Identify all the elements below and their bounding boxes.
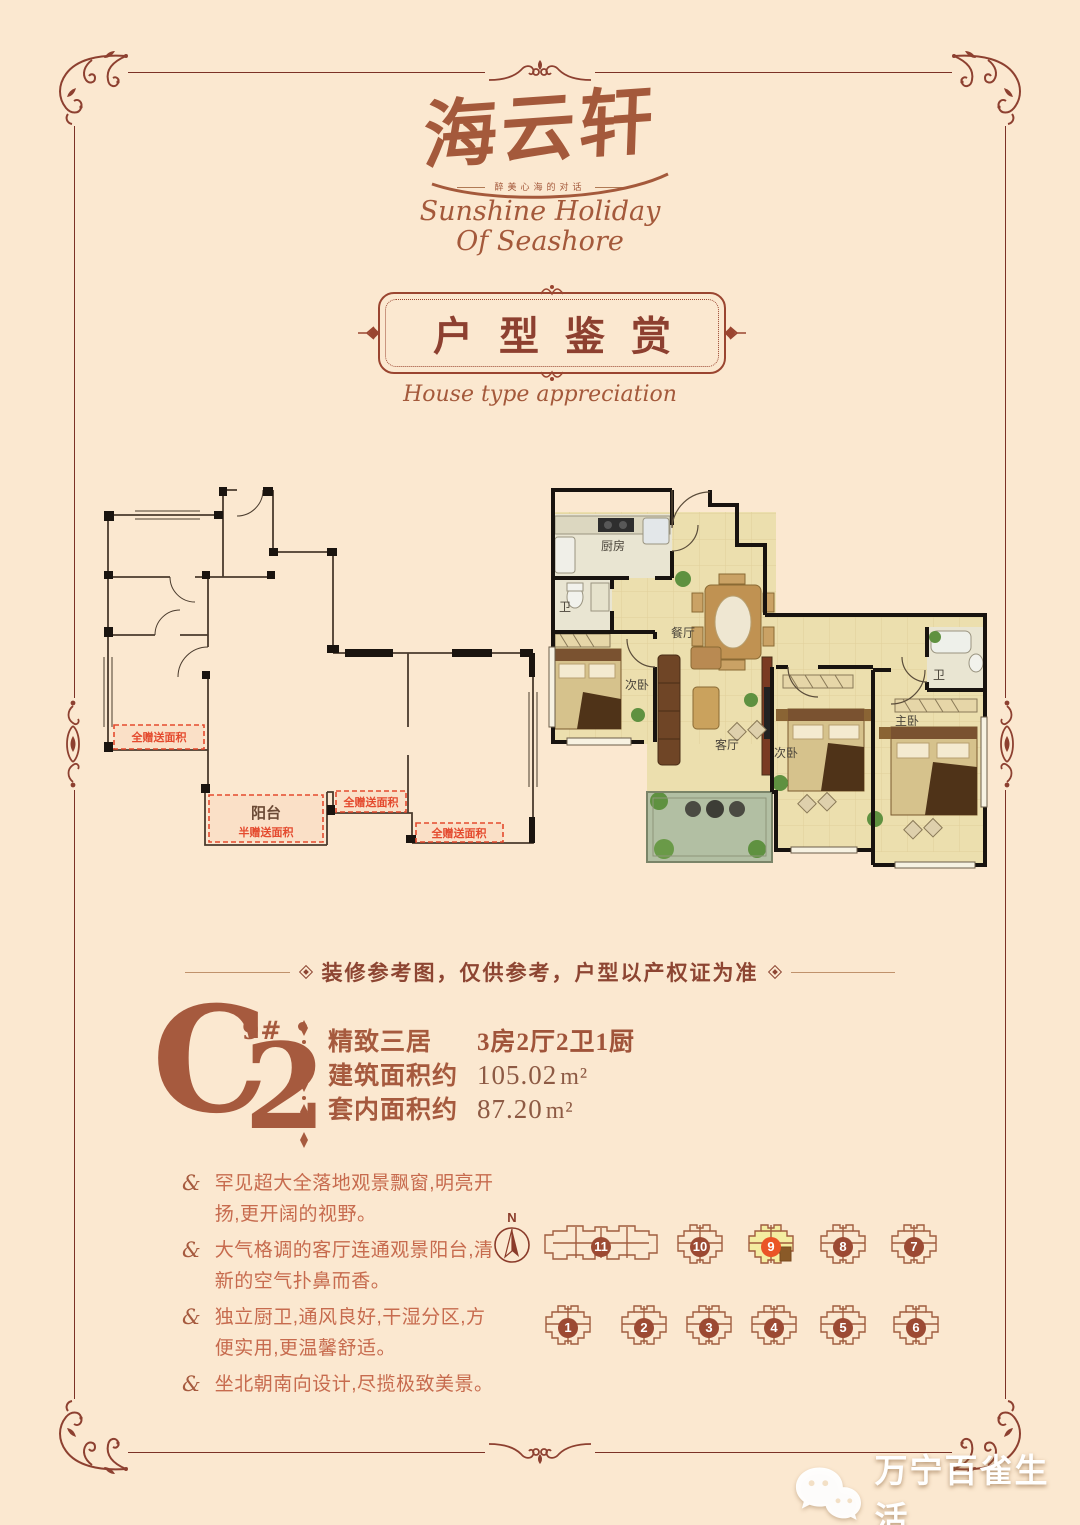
building-badge: 1: [558, 1318, 578, 1338]
room-label-bedroom: 次卧: [625, 678, 649, 692]
gift-label: 全赠送面积: [131, 730, 187, 744]
building-badge: 4: [764, 1318, 784, 1338]
floorplan-outline: 全赠送面积 全赠送面积 全赠送面积 半赠送面积 阳台: [100, 487, 540, 849]
section-banner: 户型鉴赏: [378, 292, 726, 374]
banner-wing-icon: [358, 324, 380, 342]
building-badge: 7: [904, 1237, 924, 1257]
divider-line: [791, 972, 896, 973]
spec-row: 建筑面积约 105.02m²: [328, 1056, 748, 1090]
building-5: 5: [819, 1304, 867, 1351]
gift-half-label: 半赠送面积: [239, 825, 294, 839]
balcony-label: 阳台: [251, 804, 281, 822]
building-badge: 8: [833, 1237, 853, 1257]
floorplan-furnished: 厨房 卫 餐厅 次卧 客厅 次卧 主卧 卫: [543, 487, 988, 872]
bullet-icon: &: [182, 1369, 201, 1400]
unit-code-digit: 2: [244, 1028, 326, 1146]
spec-value: 105.02m²: [477, 1060, 588, 1091]
watermark-text: 万宁百雀生活: [874, 1444, 1080, 1525]
building-1: 1: [544, 1304, 592, 1351]
disclaimer-text: 装修参考图，仅供参考，户型以产权证为准: [322, 957, 759, 987]
spec-label: 建筑面积约: [328, 1056, 477, 1092]
building-9-highlighted: 9: [747, 1223, 795, 1270]
corner-flourish-icon: [48, 1399, 128, 1479]
banner-title: 户型鉴赏: [380, 294, 724, 372]
list-item: & 罕见超大全落地观景飘窗,明亮开扬,更开阔的视野。: [182, 1168, 494, 1230]
gift-label: 全赠送面积: [431, 826, 487, 840]
room-label-bedroom: 次卧: [774, 746, 798, 760]
building-badge: 3: [699, 1318, 719, 1338]
outline-door-arcs: [155, 490, 263, 677]
building-11: 11: [543, 1223, 659, 1270]
spec-label: 精致三居: [328, 1022, 477, 1058]
building-8: 8: [819, 1223, 867, 1270]
diamond-ornament-icon: [767, 965, 781, 979]
spec-label: 套内面积约: [328, 1090, 477, 1126]
building-2: 2: [620, 1304, 668, 1351]
building-badge: 9: [761, 1237, 781, 1257]
logo-swash-icon: [430, 170, 670, 206]
poster-page: 海云轩 醉美心海的对话 Sunshine Holiday Of Seashore…: [0, 0, 1080, 1525]
diamond-ornament-icon: [298, 965, 312, 979]
building-badge: 2: [634, 1318, 654, 1338]
banner-wing-icon: [724, 324, 746, 342]
spec-row: 精致三居 3房2厅2卫1厨: [328, 1022, 748, 1056]
crest-ornament-icon: [485, 1436, 595, 1468]
side-scroll-icon: [996, 698, 1018, 790]
room-label-dining: 餐厅: [671, 625, 695, 640]
building-7: 7: [890, 1223, 938, 1270]
unit-specs: 精致三居 3房2厅2卫1厨 建筑面积约 105.02m² 套内面积约 87.20…: [328, 1022, 748, 1124]
banner-subtitle: House type appreciation: [0, 382, 1080, 407]
list-item: & 大气格调的客厅连通观景阳台,清新的空气扑鼻而香。: [182, 1235, 494, 1297]
outline-pillars: [104, 487, 535, 843]
list-item: & 坐北朝南向设计,尽揽极致美景。: [182, 1369, 494, 1400]
disclaimer-row: 装修参考图，仅供参考，户型以产权证为准: [185, 957, 895, 987]
room-label-kitchen: 厨房: [601, 538, 625, 553]
building-badge: 11: [591, 1237, 611, 1257]
building-badge: 6: [906, 1318, 926, 1338]
room-label-bath: 卫: [559, 600, 571, 614]
building-10: 10: [676, 1223, 724, 1270]
unit-code: C 9# 2: [152, 1002, 342, 1140]
outline-walls: [104, 490, 537, 845]
svg-text:N: N: [507, 1210, 516, 1225]
wechat-icon: [792, 1463, 864, 1521]
building-4: 4: [750, 1304, 798, 1351]
brand-logo: 海云轩: [422, 84, 658, 175]
compass-icon: N: [490, 1210, 534, 1268]
brand-subtitle: Sunshine Holiday Of Seashore: [0, 197, 1080, 257]
spec-value: 3房2厅2卫1厨: [477, 1022, 638, 1058]
building-3: 3: [685, 1304, 733, 1351]
side-scroll-icon: [62, 698, 84, 790]
room-label-living: 客厅: [715, 737, 739, 752]
watermark: 万宁百雀生活: [792, 1444, 1080, 1525]
list-item: & 独立厨卫,通风良好,干湿分区,方便实用,更温馨舒适。: [182, 1302, 494, 1364]
feature-list: & 罕见超大全落地观景飘窗,明亮开扬,更开阔的视野。 & 大气格调的客厅连通观景…: [182, 1168, 494, 1405]
divider-line: [185, 972, 290, 973]
building-badge: 10: [690, 1237, 710, 1257]
room-label-master: 主卧: [895, 714, 919, 728]
siteplan: N 11 10 9 8 7 1: [478, 1200, 956, 1360]
bullet-icon: &: [182, 1235, 201, 1297]
beaded-divider-icon: [298, 1018, 310, 1150]
brand-header: 海云轩 醉美心海的对话 Sunshine Holiday Of Seashore: [0, 92, 1080, 257]
gift-label: 全赠送面积: [343, 795, 399, 809]
building-6: 6: [892, 1304, 940, 1351]
spec-row: 套内面积约 87.20m²: [328, 1090, 748, 1124]
spec-value: 87.20m²: [477, 1094, 574, 1125]
room-label-bath: 卫: [933, 668, 945, 682]
banner-trefoil-icon: [539, 282, 565, 296]
building-badge: 5: [833, 1318, 853, 1338]
bullet-icon: &: [182, 1168, 201, 1230]
bullet-icon: &: [182, 1302, 201, 1364]
